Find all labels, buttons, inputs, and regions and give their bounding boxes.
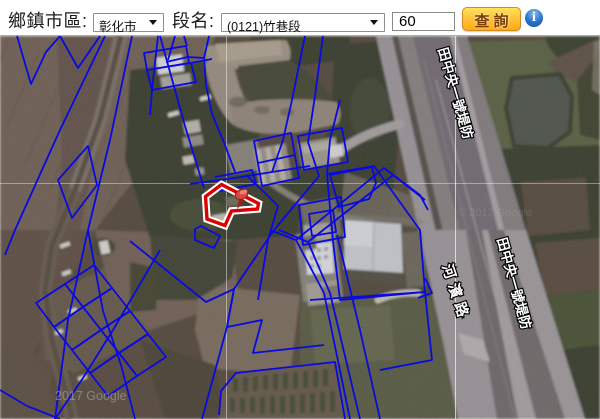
svg-text:2017 Google: 2017 Google — [55, 389, 127, 403]
svg-text:© 2017 Google: © 2017 Google — [458, 207, 532, 219]
